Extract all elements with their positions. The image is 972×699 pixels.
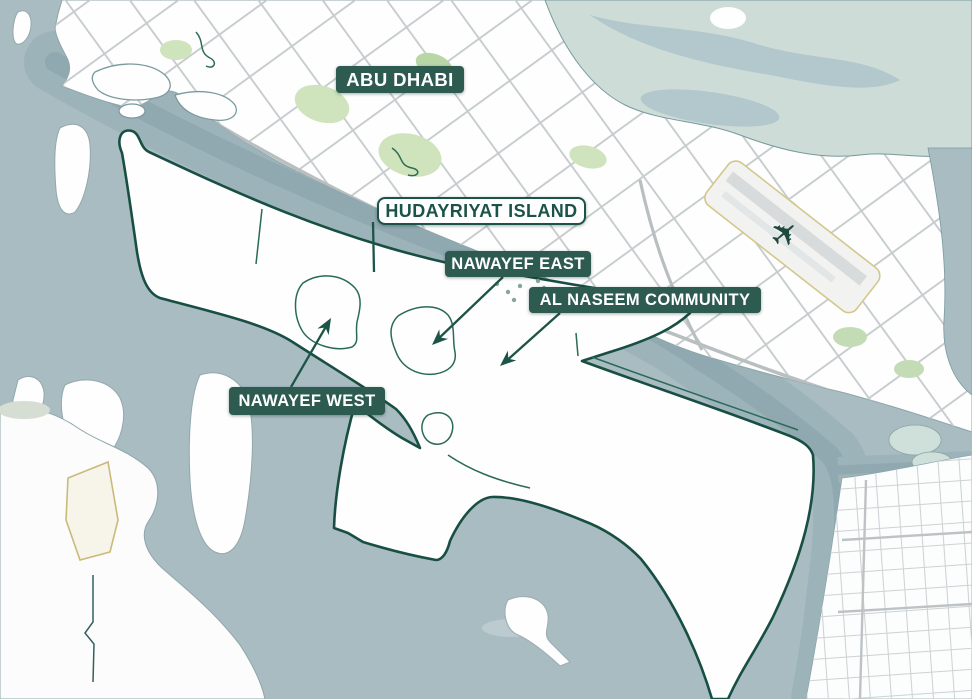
label-abu-dhabi: ABU DHABI [336,66,464,93]
map-canvas: ✈ [0,0,972,699]
label-hudayriyat-island: HUDAYRIYAT ISLAND [377,197,586,225]
map-screenshot: ✈ [0,0,972,699]
label-al-naseem-community: AL NASEEM COMMUNITY [529,287,761,313]
leader-line-hudayriyat [373,222,374,272]
label-nawayef-west: NAWAYEF WEST [229,387,385,415]
label-nawayef-east: NAWAYEF EAST [445,251,591,277]
